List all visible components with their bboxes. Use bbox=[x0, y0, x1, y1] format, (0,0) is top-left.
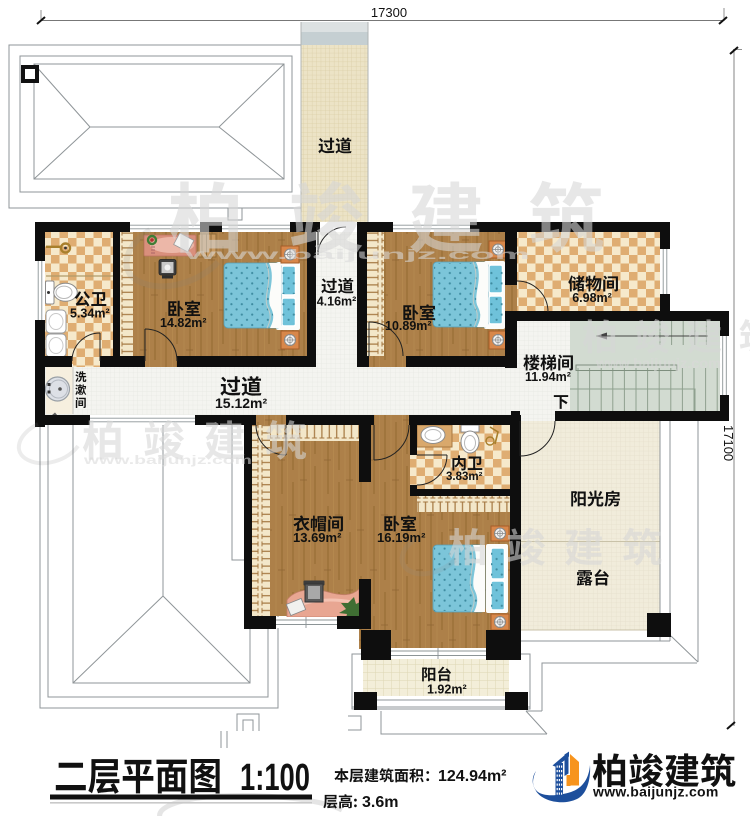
svg-text:17300: 17300 bbox=[371, 5, 407, 20]
svg-text:14.82m²: 14.82m² bbox=[160, 316, 207, 330]
svg-text:3.83m²: 3.83m² bbox=[446, 471, 483, 483]
svg-text:6.98m²: 6.98m² bbox=[572, 291, 612, 305]
svg-text:www.baijunjz.com: www.baijunjz.com bbox=[182, 246, 530, 262]
svg-text:www.baijunjz.com: www.baijunjz.com bbox=[592, 784, 719, 800]
svg-text:www.baijunjz.com: www.baijunjz.com bbox=[82, 453, 252, 467]
svg-text:15.12m²: 15.12m² bbox=[215, 395, 267, 411]
svg-text:11.94m²: 11.94m² bbox=[525, 370, 571, 384]
svg-text:16.19m²: 16.19m² bbox=[377, 530, 426, 545]
svg-text:124.94m²: 124.94m² bbox=[438, 768, 507, 785]
svg-text:3.6m: 3.6m bbox=[362, 794, 398, 811]
svg-text:1:100: 1:100 bbox=[240, 757, 310, 799]
svg-text:5.34m²: 5.34m² bbox=[70, 307, 110, 321]
svg-text:13.69m²: 13.69m² bbox=[293, 530, 342, 545]
svg-text:17100: 17100 bbox=[721, 425, 736, 461]
svg-text:www.baijunjz.com: www.baijunjz.com bbox=[595, 355, 721, 371]
svg-text:4.16m²: 4.16m² bbox=[317, 295, 357, 309]
svg-text:10.89m²: 10.89m² bbox=[385, 319, 432, 333]
svg-text:1.92m²: 1.92m² bbox=[427, 683, 467, 697]
